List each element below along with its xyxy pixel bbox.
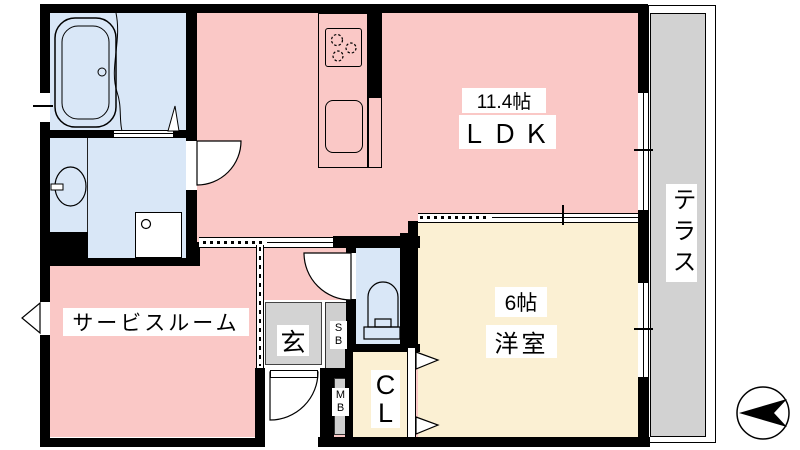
meter-box-label: M B [332,388,349,416]
western-size-label: 6帖 [495,287,547,317]
bathtub-icon [55,13,122,131]
floor-plan: 11.4帖 ＬＤＫ 6帖 洋室 サービスルーム 玄 テラス C L S B M … [0,0,800,450]
service-room-label: サービスルーム [63,308,249,336]
shoe-box-label: S B [330,321,347,349]
service-window-marker [22,303,40,333]
stove-burners [332,35,357,62]
closet-char-l: L [378,399,393,427]
mb-char-b: B [337,402,344,415]
bath-door-marker [168,106,179,131]
toilet-icon [364,282,400,339]
entrance-label: 玄 [277,325,309,356]
washing-machine-dial [142,220,151,229]
compass-icon [737,387,789,439]
closet-door-marker-2 [416,417,438,434]
sb-char-b: B [335,335,342,348]
door-arc-washroom [197,141,241,185]
entrance-door-leaf [270,370,318,378]
ldk-name-label: ＬＤＫ [459,115,556,149]
ldk-size-label: 11.4帖 [462,88,546,113]
terrace-label: テラス [666,184,697,282]
door-arc-entrance [270,372,318,420]
western-name-label: 洋室 [486,325,557,358]
closet-label: C L [371,370,400,428]
washbasin-icon [51,167,86,206]
mb-char-m: M [336,389,345,402]
door-arc-toilet [304,253,351,300]
sb-char-s: S [335,322,342,335]
closet-door-marker-1 [416,352,438,369]
closet-char-c: C [376,371,396,399]
